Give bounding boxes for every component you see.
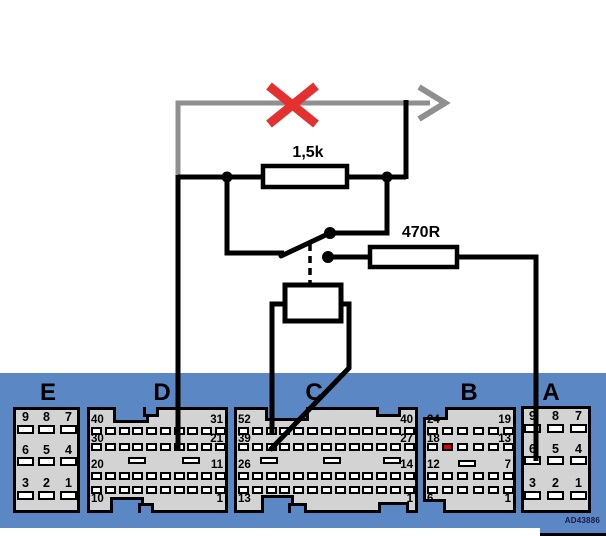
pin-highlighted bbox=[442, 443, 453, 451]
pin-5 bbox=[547, 456, 564, 465]
pin-8 bbox=[547, 424, 564, 433]
spacer-slot bbox=[128, 457, 146, 464]
connector-notch bbox=[143, 407, 159, 417]
pin bbox=[473, 427, 484, 435]
pin-number: 4 bbox=[570, 443, 587, 456]
pin bbox=[335, 472, 346, 480]
pin bbox=[215, 472, 226, 480]
pin bbox=[457, 427, 468, 435]
pin-row-label: 13 bbox=[498, 434, 511, 446]
pin-row-label: 30 bbox=[91, 434, 104, 446]
pin-number: 3 bbox=[17, 477, 34, 490]
pin-number: 1 bbox=[570, 477, 587, 490]
pin bbox=[307, 486, 318, 494]
pin bbox=[160, 472, 171, 480]
pin bbox=[201, 486, 212, 494]
pin bbox=[321, 486, 332, 494]
connector-c-label: C bbox=[299, 381, 329, 405]
pin-row-label: 20 bbox=[91, 460, 104, 472]
pin bbox=[335, 443, 346, 451]
pin bbox=[160, 427, 171, 435]
pin bbox=[279, 486, 290, 494]
pin bbox=[321, 472, 332, 480]
pin-row-label: 10 bbox=[91, 494, 104, 506]
pin bbox=[293, 472, 304, 480]
spacer-slot bbox=[458, 460, 476, 467]
pin bbox=[390, 486, 401, 494]
pin bbox=[307, 472, 318, 480]
pin-number: 5 bbox=[38, 444, 55, 457]
pin-4 bbox=[60, 457, 77, 466]
pin-row-label: 7 bbox=[505, 460, 511, 472]
connector-notch bbox=[265, 407, 309, 421]
pin bbox=[266, 443, 277, 451]
connector-notch bbox=[138, 503, 154, 513]
pin-row-label: 1 bbox=[217, 494, 223, 506]
pin bbox=[252, 486, 263, 494]
pin bbox=[473, 472, 484, 480]
pin bbox=[321, 427, 332, 435]
pin-4 bbox=[570, 456, 587, 465]
pin-number: 1 bbox=[60, 477, 77, 490]
pin bbox=[174, 443, 185, 451]
pin bbox=[293, 443, 304, 451]
pin bbox=[457, 486, 468, 494]
pin bbox=[404, 472, 415, 480]
connector-e-block: 987654321 bbox=[13, 407, 80, 513]
pin-row-label: 27 bbox=[400, 434, 413, 446]
pin bbox=[132, 472, 143, 480]
pin bbox=[362, 427, 373, 435]
pin-row-label: 52 bbox=[238, 415, 251, 427]
pin bbox=[473, 486, 484, 494]
pin-7 bbox=[570, 424, 587, 433]
pin bbox=[457, 443, 468, 451]
pin-number: 2 bbox=[38, 477, 55, 490]
connector-d-label: D bbox=[147, 381, 177, 405]
resistor-top-label: 1,5k bbox=[278, 144, 338, 162]
spacer-slot bbox=[260, 457, 278, 464]
pin-number: 4 bbox=[60, 444, 77, 457]
pin-2 bbox=[547, 491, 564, 500]
connector-d-block: 403130212011101 bbox=[87, 407, 228, 513]
pin bbox=[119, 486, 130, 494]
pin bbox=[293, 486, 304, 494]
pin bbox=[146, 443, 157, 451]
pin bbox=[362, 472, 373, 480]
pin bbox=[279, 472, 290, 480]
pin-row-label: 6 bbox=[427, 494, 433, 506]
pin-9 bbox=[17, 425, 34, 434]
pin-row-label: 26 bbox=[238, 460, 251, 472]
pin-9 bbox=[524, 424, 541, 433]
pin bbox=[119, 472, 130, 480]
pin bbox=[252, 427, 263, 435]
pin-number: 7 bbox=[60, 411, 77, 424]
pin bbox=[238, 472, 249, 480]
pin-row-label: 21 bbox=[210, 434, 223, 446]
pin bbox=[473, 443, 484, 451]
pin-number: 8 bbox=[547, 410, 564, 423]
pin bbox=[335, 427, 346, 435]
pin-row-label: 11 bbox=[211, 460, 223, 472]
pin bbox=[187, 443, 198, 451]
pin bbox=[442, 486, 453, 494]
pin bbox=[132, 427, 143, 435]
pin-row-label: 39 bbox=[238, 434, 251, 446]
pin-5 bbox=[38, 457, 55, 466]
spacer-slot bbox=[323, 457, 341, 464]
pin-row-label: 1 bbox=[505, 494, 511, 506]
connector-a-label: A bbox=[536, 381, 566, 405]
pin-3 bbox=[17, 491, 34, 500]
pin-6 bbox=[17, 457, 34, 466]
pin-1 bbox=[570, 491, 587, 500]
connector-a-block: 987654321 bbox=[521, 406, 591, 513]
pin bbox=[362, 443, 373, 451]
pin bbox=[376, 427, 387, 435]
pin bbox=[442, 472, 453, 480]
pin bbox=[307, 427, 318, 435]
pin bbox=[119, 443, 130, 451]
pin-row-label: 12 bbox=[427, 460, 440, 472]
connector-notch bbox=[376, 407, 401, 417]
pin-3 bbox=[524, 491, 541, 500]
connector-notch bbox=[288, 503, 307, 513]
pin-row-label: 31 bbox=[210, 415, 223, 427]
connector-e-label: E bbox=[33, 381, 63, 405]
pin-row-label: 1 bbox=[407, 494, 413, 506]
pin-number: 8 bbox=[38, 411, 55, 424]
spacer-slot bbox=[182, 457, 200, 464]
pin bbox=[376, 472, 387, 480]
pin-row-label: 18 bbox=[427, 434, 440, 446]
pin bbox=[488, 486, 499, 494]
pin-row-label: 40 bbox=[400, 415, 413, 427]
pin bbox=[293, 427, 304, 435]
pin bbox=[252, 443, 263, 451]
pin bbox=[252, 472, 263, 480]
connector-c-block: 524039272614131 bbox=[234, 407, 418, 513]
pin bbox=[503, 472, 514, 480]
pin bbox=[91, 472, 102, 480]
diagram-code: AD43886 bbox=[556, 516, 600, 525]
pin-number: 7 bbox=[570, 410, 587, 423]
pin bbox=[266, 486, 277, 494]
pin-row-label: 19 bbox=[498, 415, 511, 427]
pin bbox=[349, 427, 360, 435]
pin-number: 9 bbox=[17, 411, 34, 424]
pin-6 bbox=[524, 456, 541, 465]
pin bbox=[266, 427, 277, 435]
pin bbox=[146, 472, 157, 480]
pin bbox=[427, 472, 438, 480]
connectors-layer: 987654321E403130212011101D52403927261413… bbox=[0, 0, 606, 536]
pin bbox=[279, 427, 290, 435]
pin bbox=[105, 427, 116, 435]
pin-number: 6 bbox=[17, 444, 34, 457]
pin-8 bbox=[38, 425, 55, 434]
spacer-slot bbox=[383, 457, 401, 464]
connector-b-block: 2419181312761 bbox=[423, 407, 516, 513]
pin bbox=[442, 427, 453, 435]
resistor-right-label: 470R bbox=[391, 224, 451, 242]
pin bbox=[321, 443, 332, 451]
pin bbox=[266, 472, 277, 480]
pin bbox=[132, 443, 143, 451]
pin-number: 2 bbox=[547, 477, 564, 490]
pin bbox=[174, 486, 185, 494]
pin-row-label: 40 bbox=[91, 415, 104, 427]
pin bbox=[187, 486, 198, 494]
pin bbox=[307, 443, 318, 451]
connector-b-label: B bbox=[454, 381, 484, 405]
pin bbox=[160, 486, 171, 494]
pin bbox=[174, 427, 185, 435]
pin bbox=[146, 427, 157, 435]
pin bbox=[201, 472, 212, 480]
pin-row-label: 14 bbox=[400, 460, 413, 472]
pin bbox=[119, 427, 130, 435]
pin bbox=[349, 486, 360, 494]
pin-number: 9 bbox=[524, 410, 541, 423]
pin-row-label: 13 bbox=[238, 494, 251, 506]
pin bbox=[105, 443, 116, 451]
pin bbox=[335, 486, 346, 494]
pin bbox=[376, 486, 387, 494]
pin bbox=[349, 472, 360, 480]
pin-1 bbox=[60, 491, 77, 500]
connector-notch bbox=[378, 502, 409, 513]
pin-number: 3 bbox=[524, 477, 541, 490]
pin bbox=[376, 443, 387, 451]
pin bbox=[187, 427, 198, 435]
pin bbox=[146, 486, 157, 494]
pin bbox=[105, 486, 116, 494]
pin bbox=[105, 472, 116, 480]
pin bbox=[187, 472, 198, 480]
pin-number: 5 bbox=[547, 443, 564, 456]
pin bbox=[132, 486, 143, 494]
pin bbox=[160, 443, 171, 451]
pin bbox=[174, 472, 185, 480]
pin bbox=[488, 472, 499, 480]
pin bbox=[390, 472, 401, 480]
pin-number: 6 bbox=[524, 443, 541, 456]
pin-7 bbox=[60, 425, 77, 434]
pin bbox=[349, 443, 360, 451]
pin bbox=[457, 472, 468, 480]
pin-2 bbox=[38, 491, 55, 500]
pin bbox=[279, 443, 290, 451]
wiring-diagram: 987654321E403130212011101D52403927261413… bbox=[0, 0, 606, 536]
pin bbox=[362, 486, 373, 494]
pin-row-label: 24 bbox=[427, 415, 440, 427]
